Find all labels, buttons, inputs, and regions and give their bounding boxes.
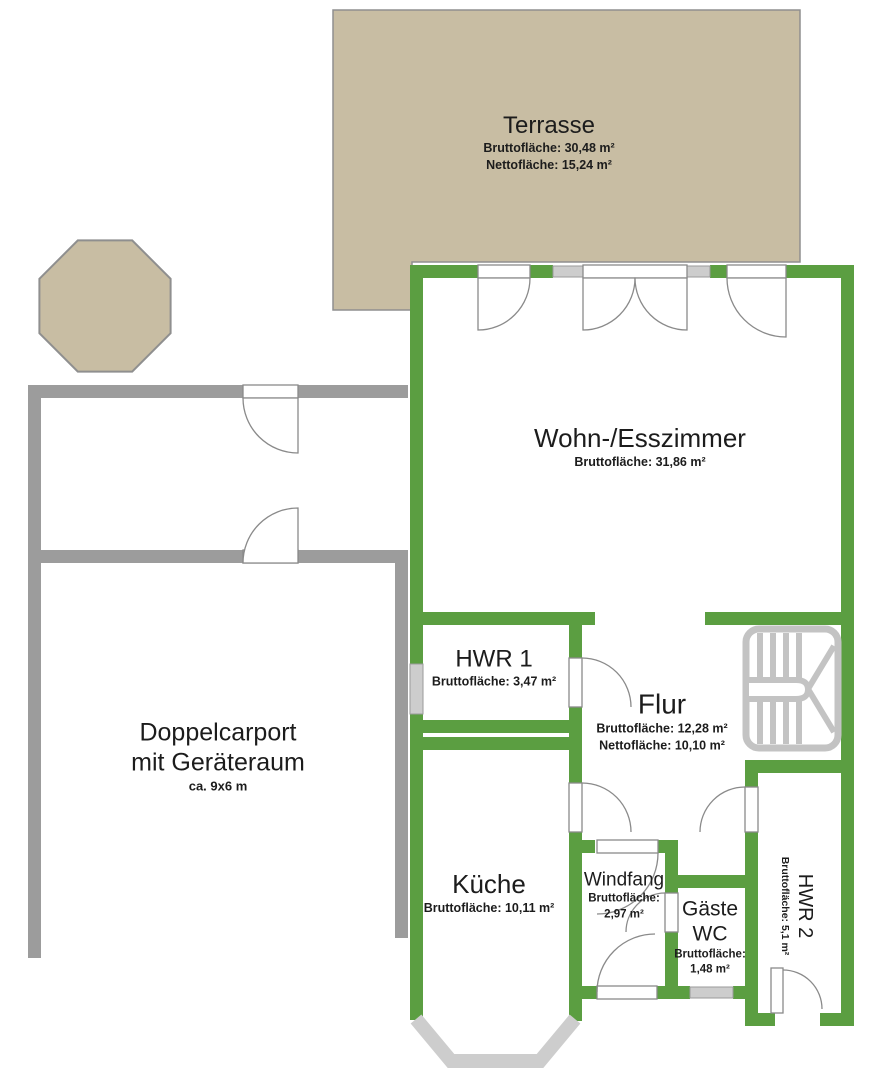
bay-window-kueche [416, 1019, 575, 1061]
room-name: Küche [424, 869, 555, 900]
room-area-netto: Nettofläche: 10,10 m² [596, 738, 727, 755]
window-hwr1 [410, 664, 423, 714]
room-area-brutto: Bruttofläche: 3,47 m² [432, 674, 556, 691]
room-label-terrasse: Terrasse Bruttofläche: 30,48 m² Nettoflä… [483, 112, 614, 174]
staircase [746, 629, 838, 748]
room-area-value: 1,48 m² [674, 963, 746, 979]
room-label-gaeste-wc: Gäste WC Bruttofläche: 1,48 m² [674, 898, 746, 979]
room-area-brutto: Bruttofläche: 31,86 m² [534, 454, 746, 471]
floorplan-drawing [0, 0, 889, 1080]
room-name: HWR 1 [432, 645, 556, 673]
room-area-brutto: Bruttofläche: 12,28 m² [596, 721, 727, 738]
room-area-brutto: Bruttofläche: 30,48 m² [483, 140, 614, 157]
carport-walls [28, 385, 408, 958]
room-label-wohn-esszimmer: Wohn-/Esszimmer Bruttofläche: 31,86 m² [534, 423, 746, 471]
room-name-line1: Gäste [674, 898, 746, 923]
window-terrace-right [687, 266, 710, 277]
room-name-line2: WC [674, 922, 746, 947]
room-label-windfang: Windfang Bruttofläche: 2,97 m² [584, 869, 664, 922]
room-area-label: Bruttofläche: [584, 892, 664, 908]
room-name: HWR 2 [792, 857, 816, 956]
room-area-brutto: Bruttofläche: 5,1 m² [778, 857, 792, 956]
room-label-kueche: Küche Bruttofläche: 10,11 m² [424, 869, 555, 917]
room-name: Terrasse [483, 112, 614, 140]
room-area-value: 2,97 m² [584, 907, 664, 923]
room-area-brutto: Bruttofläche: 10,11 m² [424, 900, 555, 917]
room-size: ca. 9x6 m [131, 778, 305, 796]
room-name: Windfang [584, 869, 664, 891]
floorplan: Terrasse Bruttofläche: 30,48 m² Nettoflä… [0, 0, 889, 1080]
room-name: Flur [596, 688, 727, 721]
room-name-line2: mit Geräteraum [131, 748, 305, 778]
room-label-hwr2: HWR 2 Bruttofläche: 5,1 m² [778, 857, 816, 956]
room-area-netto: Nettofläche: 15,24 m² [483, 157, 614, 174]
room-label-hwr1: HWR 1 Bruttofläche: 3,47 m² [432, 645, 556, 690]
room-name: Wohn-/Esszimmer [534, 423, 746, 454]
window-terrace-left [553, 266, 583, 277]
carport-doors [243, 385, 298, 563]
room-name-line1: Doppelcarport [131, 719, 305, 749]
room-area-label: Bruttofläche: [674, 947, 746, 963]
room-label-carport: Doppelcarport mit Geräteraum ca. 9x6 m [131, 719, 305, 796]
room-label-flur: Flur Bruttofläche: 12,28 m² Nettofläche:… [596, 688, 727, 755]
window-wc [690, 987, 733, 998]
octagon-paving [39, 240, 170, 371]
